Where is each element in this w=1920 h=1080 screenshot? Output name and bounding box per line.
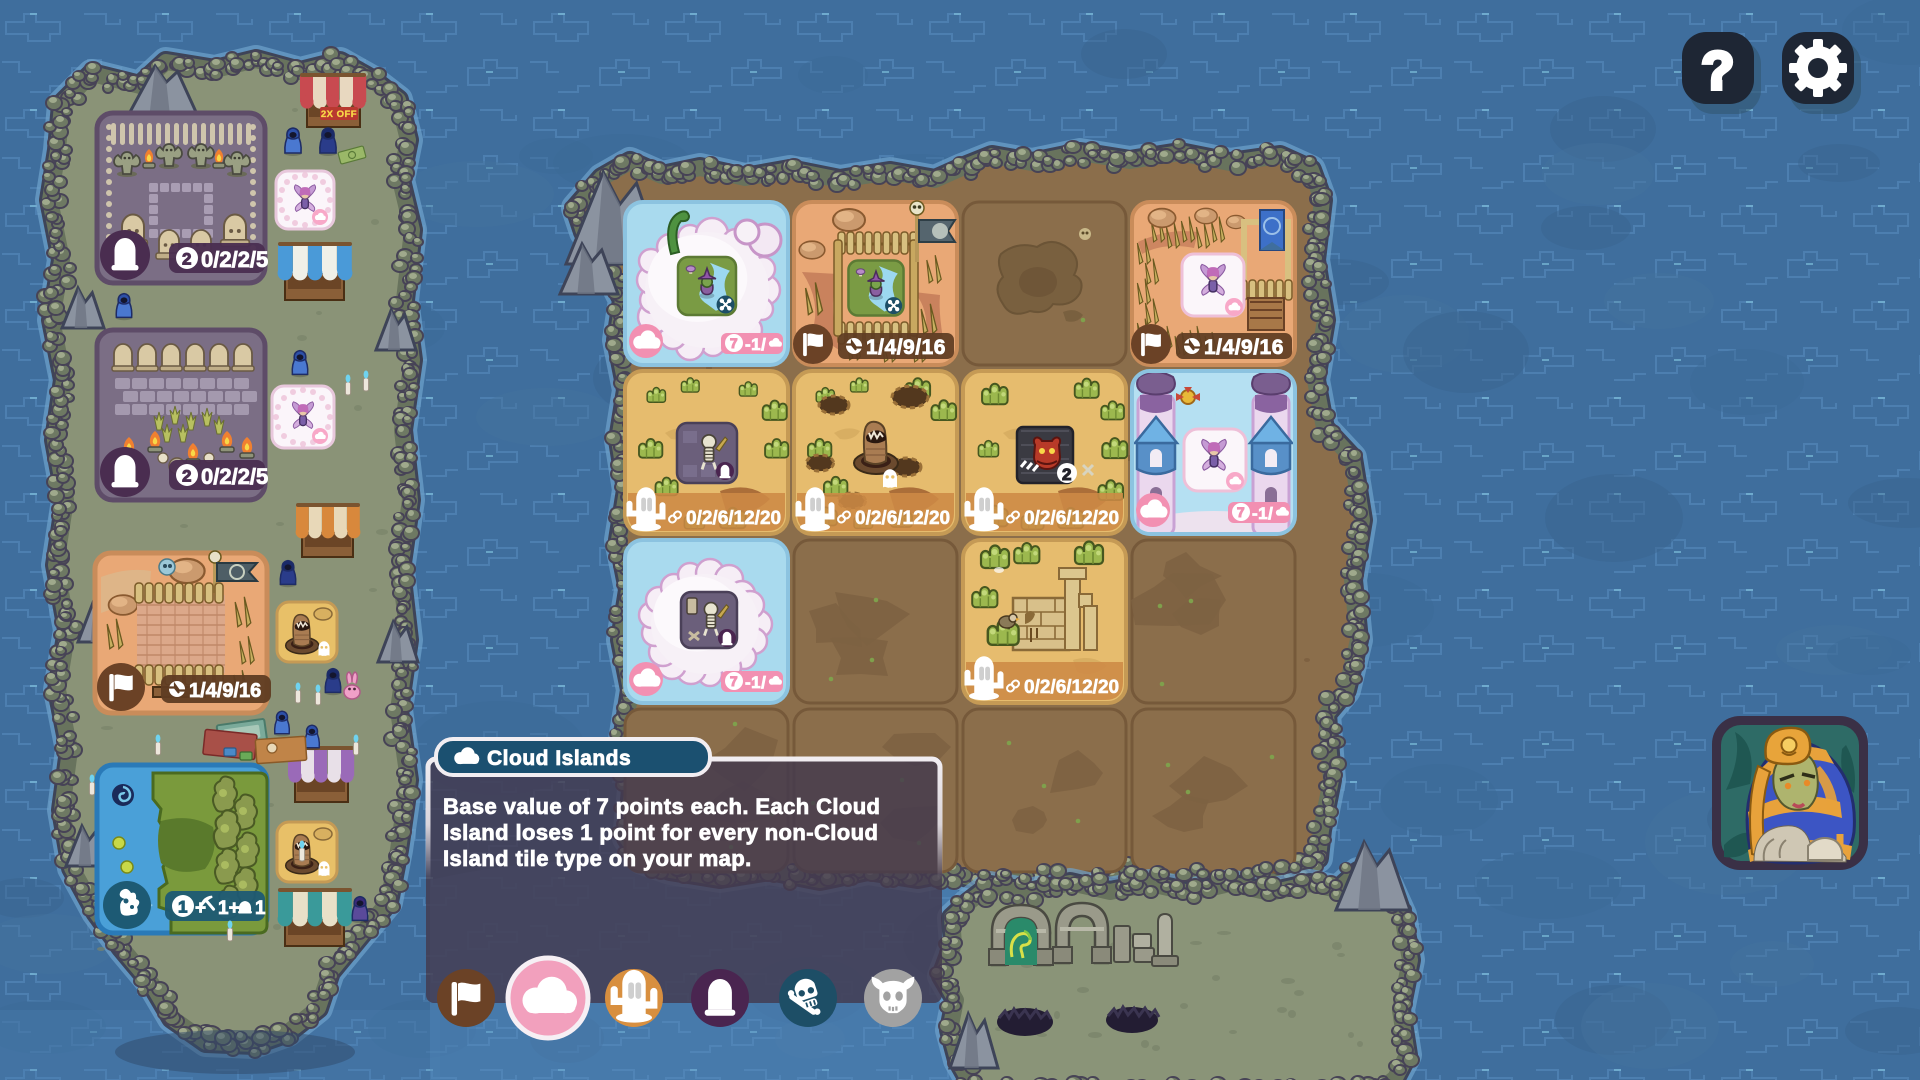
svg-text:1+: 1+ bbox=[218, 898, 240, 919]
svg-text:1/4/9/16: 1/4/9/16 bbox=[1204, 336, 1284, 359]
svg-text:1/4/9/16: 1/4/9/16 bbox=[866, 336, 946, 359]
svg-text:0/2/6/12/20: 0/2/6/12/20 bbox=[855, 508, 950, 529]
svg-text:1: 1 bbox=[178, 897, 188, 916]
svg-text:0/2/2/5: 0/2/2/5 bbox=[201, 464, 268, 489]
svg-text:Base value of 7 points each. E: Base value of 7 points each. Each Cloud bbox=[443, 794, 880, 819]
svg-text:2: 2 bbox=[182, 249, 192, 268]
svg-text:-1/: -1/ bbox=[1252, 504, 1273, 523]
svg-text:-1/: -1/ bbox=[745, 335, 766, 354]
svg-text:1: 1 bbox=[255, 898, 266, 919]
svg-text:2: 2 bbox=[182, 466, 192, 485]
svg-text:Island tile type on your map.: Island tile type on your map. bbox=[443, 846, 752, 871]
svg-text:0/2/6/12/20: 0/2/6/12/20 bbox=[1024, 677, 1119, 698]
svg-text:1/4/9/16: 1/4/9/16 bbox=[189, 680, 261, 702]
svg-text:2: 2 bbox=[1062, 465, 1072, 484]
svg-text:7: 7 bbox=[730, 335, 738, 351]
svg-text:7: 7 bbox=[1237, 504, 1245, 520]
svg-text:0/2/2/5: 0/2/2/5 bbox=[201, 247, 268, 272]
svg-text:2X OFF: 2X OFF bbox=[321, 109, 357, 120]
svg-text:?: ? bbox=[1701, 41, 1735, 101]
svg-text:0/2/6/12/20: 0/2/6/12/20 bbox=[1024, 508, 1119, 529]
svg-text:0/2/6/12/20: 0/2/6/12/20 bbox=[686, 508, 781, 529]
svg-text:-1/: -1/ bbox=[745, 673, 766, 692]
svg-text:Island loses 1 point for every: Island loses 1 point for every non-Cloud bbox=[443, 820, 878, 845]
svg-text:Cloud Islands: Cloud Islands bbox=[487, 747, 631, 770]
svg-text:7: 7 bbox=[730, 673, 738, 689]
